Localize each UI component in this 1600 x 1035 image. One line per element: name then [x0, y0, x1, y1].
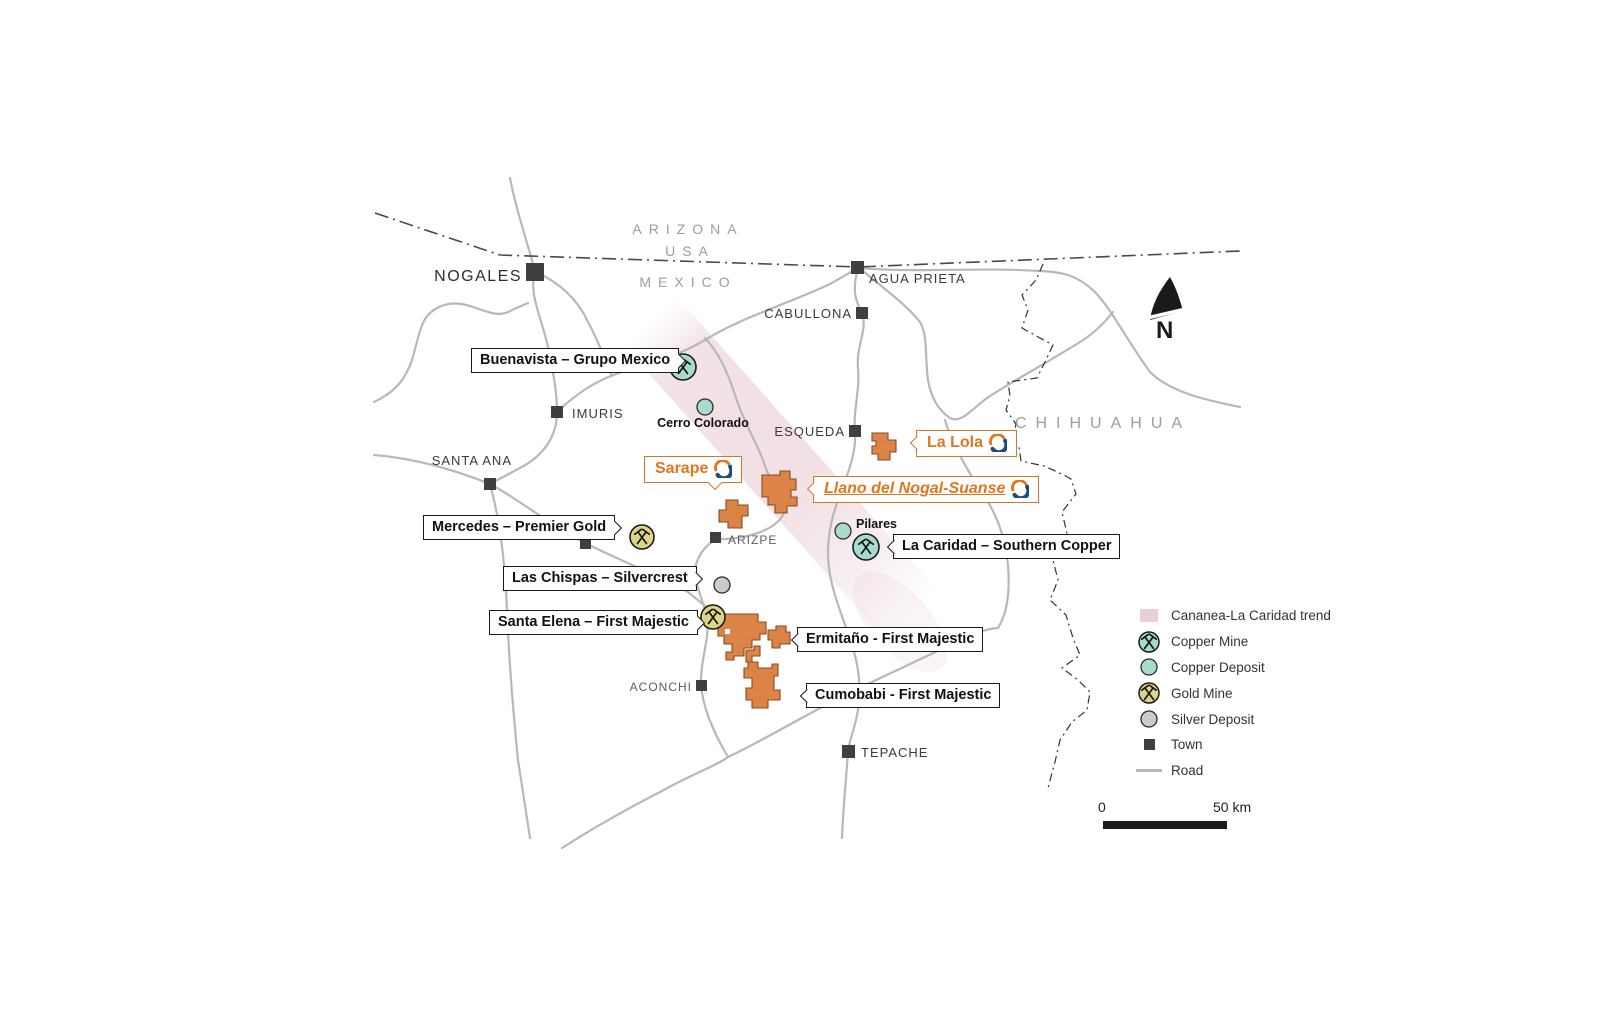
callout-la-lola: La Lola: [916, 430, 1017, 457]
trend-swatch-icon: [1136, 609, 1162, 622]
region-label-mexico: MEXICO: [639, 274, 736, 290]
callout-buenavista-label: Buenavista – Grupo Mexico: [480, 352, 670, 368]
company-logo-icon: [714, 460, 732, 478]
mining-map: N ARIZONA USA MEXICO CHIHUAHUA NOGALES A…: [0, 0, 1600, 1035]
legend-row-copper-deposit: Copper Deposit: [1136, 655, 1331, 681]
property-polygon-ermitano-east: [768, 626, 790, 648]
callout-ermitano: Ermitaño - First Majestic: [797, 627, 983, 652]
callout-las-chispas-label: Las Chispas – Silvercrest: [512, 570, 688, 586]
silver-deposit-icon: [1136, 709, 1162, 729]
town-label-imuris: IMURIS: [572, 406, 624, 421]
legend-row-road: Road: [1136, 758, 1331, 784]
town-label-santa-ana: SANTA ANA: [432, 453, 512, 468]
town-label-aconchi: ACONCHI: [630, 680, 692, 694]
legend-label: Cananea-La Caridad trend: [1171, 608, 1331, 623]
town-square-agua-prieta: [851, 261, 864, 274]
gold-mine-icon-mercedes: [630, 525, 654, 549]
callout-santa-elena: Santa Elena – First Majestic: [489, 610, 698, 635]
town-square-nogales: [526, 263, 544, 281]
scale-end-label: 50 km: [1213, 799, 1251, 815]
deposit-label-cerro-colorado: Cerro Colorado: [657, 416, 749, 430]
callout-cumobabi: Cumobabi - First Majestic: [806, 683, 1000, 708]
callout-la-caridad: La Caridad – Southern Copper: [893, 534, 1120, 559]
town-icon: [1136, 739, 1162, 750]
road-icon: [1136, 769, 1162, 772]
callout-sarape: Sarape: [644, 456, 742, 483]
region-label-usa: USA: [665, 243, 715, 259]
legend-label: Silver Deposit: [1171, 712, 1254, 727]
north-label: N: [1156, 317, 1173, 344]
copper-deposit-icon-cerro-colorado: [697, 399, 713, 415]
property-polygon-la-lola: [872, 433, 896, 460]
deposit-label-pilares: Pilares: [856, 517, 897, 531]
copper-deposit-icon-pilares: [835, 523, 851, 539]
town-square-esqueda: [849, 425, 861, 437]
copper-deposit-icon: [1136, 657, 1162, 677]
town-square-arizpe: [710, 532, 721, 543]
legend-label: Gold Mine: [1171, 686, 1233, 701]
legend-row-gold-mine: Gold Mine: [1136, 680, 1331, 706]
town-label-esqueda: ESQUEDA: [774, 424, 845, 439]
region-label-chihuahua: CHIHUAHUA: [1015, 415, 1191, 433]
callout-la-lola-label: La Lola: [927, 434, 983, 452]
town-square-aconchi: [696, 680, 707, 691]
legend-row-town: Town: [1136, 732, 1331, 758]
company-logo-icon: [1011, 480, 1029, 498]
company-logo-icon: [989, 434, 1007, 452]
property-polygon-sarape: [719, 500, 748, 528]
legend-row-trend: Cananea-La Caridad trend: [1136, 603, 1331, 629]
legend-label: Road: [1171, 763, 1203, 778]
legend-label: Town: [1171, 737, 1203, 752]
legend-label: Copper Deposit: [1171, 660, 1265, 675]
callout-cumobabi-label: Cumobabi - First Majestic: [815, 687, 991, 703]
town-square-tepache: [842, 745, 855, 758]
copper-mine-icon-la-caridad: [853, 534, 879, 560]
scale-start-label: 0: [1098, 799, 1106, 815]
callout-buenavista: Buenavista – Grupo Mexico: [471, 348, 679, 373]
callout-mercedes-label: Mercedes – Premier Gold: [432, 519, 606, 535]
town-label-agua-prieta: AGUA PRIETA: [869, 271, 966, 286]
town-label-cabullona: CABULLONA: [764, 306, 852, 321]
legend-row-copper-mine: Copper Mine: [1136, 629, 1331, 655]
callout-sarape-label: Sarape: [655, 460, 708, 478]
town-square-imuris: [551, 406, 563, 418]
callout-las-chispas: Las Chispas – Silvercrest: [503, 566, 697, 591]
town-label-nogales: NOGALES: [434, 268, 522, 286]
copper-mine-icon: [1136, 630, 1162, 654]
usa-mexico-border: [375, 213, 1240, 267]
legend: Cananea-La Caridad trend Copper Mine Cop…: [1136, 603, 1331, 784]
town-square-cabullona: [856, 307, 868, 319]
map-graphics: N: [0, 0, 1600, 1035]
scale-bar: [1103, 821, 1227, 829]
callout-santa-elena-label: Santa Elena – First Majestic: [498, 614, 689, 630]
silver-deposit-icon-las-chispas: [714, 577, 730, 593]
gold-mine-icon: [1136, 681, 1162, 705]
callout-llano-del-nogal-suanse: Llano del Nogal-Suanse: [813, 476, 1039, 503]
north-arrow-icon: N: [1147, 277, 1186, 344]
callout-ermitano-label: Ermitaño - First Majestic: [806, 631, 974, 647]
legend-row-silver-deposit: Silver Deposit: [1136, 706, 1331, 732]
gold-mine-icon-santa-elena: [701, 605, 725, 629]
town-label-arizpe: ARIZPE: [728, 533, 777, 547]
legend-label: Copper Mine: [1171, 634, 1248, 649]
callout-mercedes: Mercedes – Premier Gold: [423, 515, 615, 540]
callout-llano-label: Llano del Nogal-Suanse: [824, 480, 1005, 498]
town-square-santa-ana: [484, 478, 496, 490]
town-label-tepache: TEPACHE: [861, 745, 928, 760]
region-label-arizona: ARIZONA: [632, 221, 743, 237]
callout-la-caridad-label: La Caridad – Southern Copper: [902, 538, 1111, 554]
property-polygon-cumobabi: [744, 662, 780, 708]
